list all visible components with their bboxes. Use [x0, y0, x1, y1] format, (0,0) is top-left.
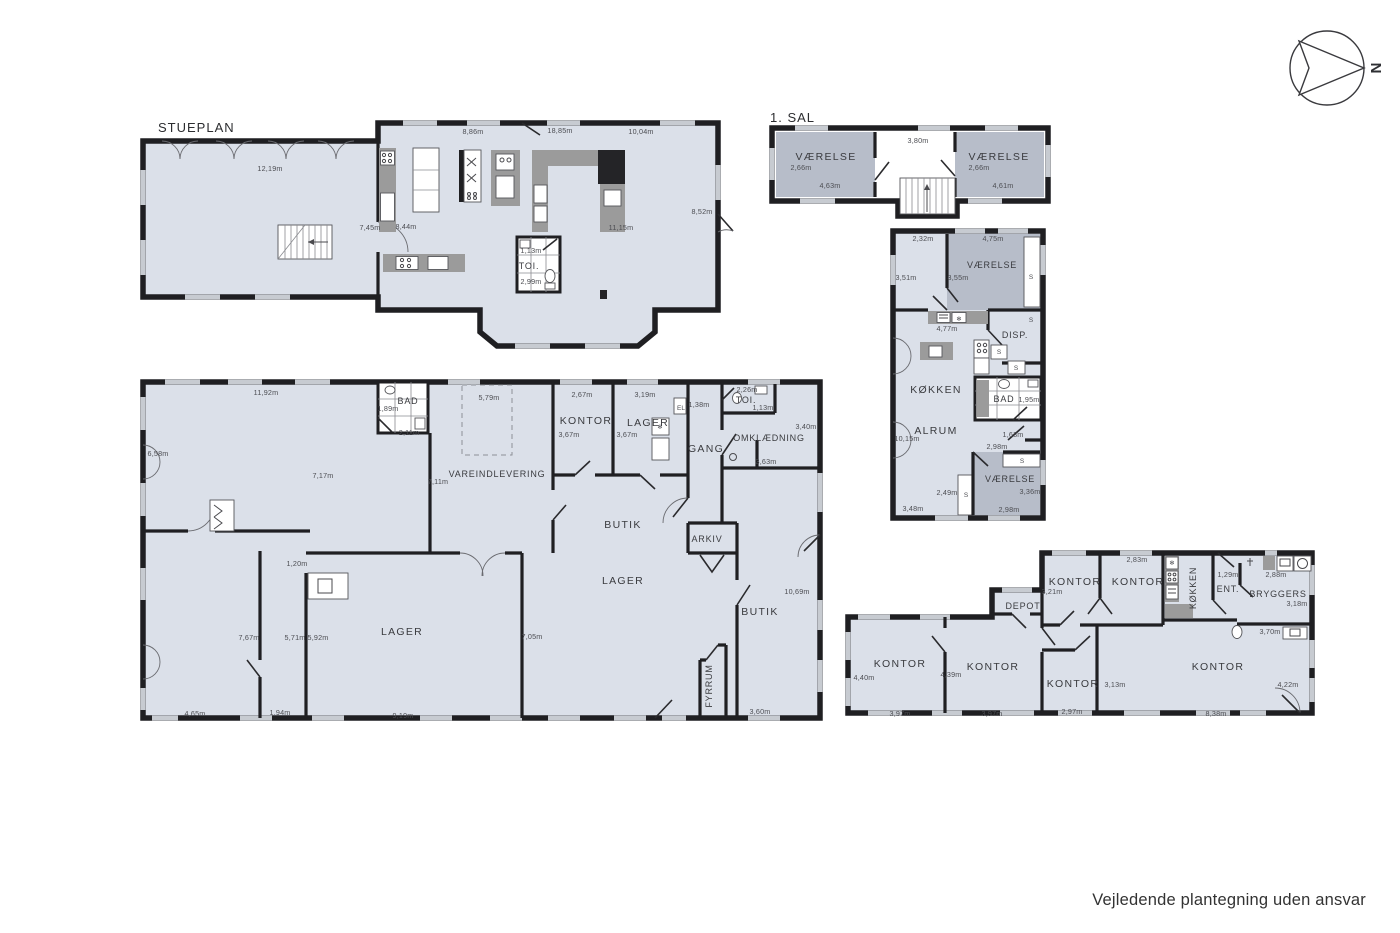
- dim-label: 2,66m: [791, 163, 812, 172]
- first-floor-plan: 1. SAL VÆRELSE 2,66m 4,63m 3,80m VÆRELSE…: [770, 110, 1051, 216]
- dim-label: 3,97m: [890, 709, 911, 718]
- room-label-kontor: KONTOR: [967, 661, 1020, 673]
- room-label-toi: TOI.: [519, 261, 540, 271]
- dim-label: 1,63m: [1003, 430, 1024, 439]
- compass-north-label: N: [1367, 63, 1384, 74]
- hall-plan: ❄ 11,92m 6,58m BAD 1,89m 2,11m 5,79m 7,1…: [141, 380, 823, 721]
- room-label-vaerelse: VÆRELSE: [985, 474, 1035, 484]
- room-label-koekken: KØKKEN: [1188, 567, 1198, 609]
- room-label-alrum: ALRUM: [914, 425, 957, 437]
- dim-label: 5,71m: [285, 633, 306, 642]
- room-label-ent: ENT.: [1217, 584, 1240, 594]
- room-label-disp: DISP.: [1002, 330, 1028, 340]
- dim-label: 8,86m: [463, 127, 484, 136]
- dim-label: 2,67m: [572, 390, 593, 399]
- dim-label: 4,77m: [937, 324, 958, 333]
- sal-title: 1. SAL: [770, 110, 815, 125]
- dim-label: 2,99m: [521, 277, 542, 286]
- room-label-kontor: KONTOR: [1047, 678, 1100, 690]
- room-label-koekken: KØKKEN: [910, 384, 962, 396]
- dim-label: 4,40m: [854, 673, 875, 682]
- dim-label: 2,98m: [987, 442, 1008, 451]
- dim-label: 7,11m: [428, 477, 448, 486]
- dim-label: 1,38m: [689, 400, 710, 409]
- dim-label: 2,11m: [399, 428, 419, 437]
- dim-label: 7,45m: [360, 223, 381, 232]
- room-label-bryggers: BRYGGERS: [1249, 589, 1306, 599]
- closet-label: S: [1014, 365, 1019, 372]
- room-label-fyrrum: FYRRUM: [704, 664, 714, 707]
- room-label-vareindlevering: VAREINDLEVERING: [449, 469, 546, 479]
- dim-label: 2,88m: [1266, 570, 1287, 579]
- dim-label: 3,48m: [903, 504, 924, 513]
- compass: N: [1290, 31, 1384, 105]
- dim-label: 4,63m: [820, 181, 841, 190]
- dim-label: 1,13m: [753, 403, 774, 412]
- room-label-butik: BUTIK: [741, 606, 778, 618]
- room-label-kontor: KONTOR: [874, 658, 927, 670]
- freezer-icon: ❄: [956, 315, 962, 323]
- dim-label: 5,79m: [479, 393, 500, 402]
- dim-label: 11,92m: [254, 388, 279, 397]
- room-label-kontor: KONTOR: [1049, 576, 1102, 588]
- dim-label: 3,13m: [1105, 680, 1126, 689]
- stueplan-stairs: [278, 225, 332, 259]
- closet-label: S: [964, 492, 969, 499]
- dim-label: 4,61m: [993, 181, 1014, 190]
- el-label: EL: [677, 405, 685, 412]
- room-label-kontor: KONTOR: [1112, 576, 1165, 588]
- dim-label: 8,38m: [1206, 709, 1227, 718]
- dim-label: 1,20m: [287, 559, 308, 568]
- dim-label: 3,18m: [1287, 599, 1308, 608]
- dim-label: 3,21m: [1042, 587, 1063, 596]
- room-label-lager: LAGER: [381, 626, 423, 638]
- dim-label: 7,67m: [239, 633, 260, 642]
- dim-label: 3,67m: [617, 430, 638, 439]
- dim-label: 1,94m: [270, 708, 291, 717]
- room-label-kontor: KONTOR: [560, 415, 613, 427]
- dim-label: 2,49m: [937, 488, 958, 497]
- room-label-bad: BAD: [994, 394, 1015, 404]
- dim-label: 7,17m: [313, 471, 334, 480]
- dim-label: 10,69m: [784, 587, 809, 596]
- room-label-gang: GANG: [688, 443, 724, 455]
- dim-label: 11,15m: [609, 223, 634, 232]
- stueplan-plan: STUEPLAN 12,19m 8,86m 18,85m 10,04m 7,45…: [141, 120, 734, 349]
- dim-label: 4,39m: [941, 670, 962, 679]
- hall-outline: [143, 382, 820, 718]
- dim-label: 1,95m: [1019, 395, 1040, 404]
- dim-label: 6,58m: [148, 449, 169, 458]
- disclaimer-text: Vejledende plantegning uden ansvar: [1092, 891, 1366, 909]
- dim-label: 3,67m: [559, 430, 580, 439]
- sal-stairs: [900, 178, 955, 214]
- closet-label: S: [997, 349, 1002, 356]
- dim-label: 3,63m: [756, 457, 777, 466]
- freezer-icon: ❄: [1169, 559, 1175, 567]
- floorplan-page: STUEPLAN 12,19m 8,86m 18,85m 10,04m 7,45…: [0, 0, 1400, 933]
- room-label-bad: BAD: [398, 396, 419, 406]
- dim-label: 8,44m: [396, 222, 417, 231]
- dim-label: 2,83m: [1127, 555, 1148, 564]
- closet-label: S: [1029, 274, 1034, 281]
- dim-label: 12,19m: [257, 164, 282, 173]
- stueplan-title: STUEPLAN: [158, 120, 235, 135]
- office-plan: ❄ DEPOT 3,21m KONTOR 2,83m KONTOR KØKKEN…: [846, 551, 1315, 719]
- room-label-vaerelse: VÆRELSE: [968, 151, 1029, 163]
- closet-label: S: [1029, 317, 1034, 324]
- dim-label: 3,60m: [750, 707, 771, 716]
- dim-label: 1,29m: [1218, 570, 1239, 579]
- dim-label: 2,98m: [999, 505, 1020, 514]
- dim-label: 18,85m: [547, 126, 572, 135]
- dim-label: 7,05m: [522, 632, 543, 641]
- dim-label: 5,92m: [308, 633, 329, 642]
- room-label-lager: LAGER: [602, 575, 644, 587]
- dim-label: 3,97m: [982, 709, 1003, 718]
- dim-label: 3,40m: [796, 422, 817, 431]
- room-label-kontor: KONTOR: [1192, 661, 1245, 673]
- room-label-vaerelse: VÆRELSE: [967, 260, 1017, 270]
- room-label-vaerelse: VÆRELSE: [795, 151, 856, 163]
- dim-label: 10,15m: [894, 434, 919, 443]
- dim-label: 3,80m: [908, 136, 929, 145]
- floorplan-canvas: STUEPLAN 12,19m 8,86m 18,85m 10,04m 7,45…: [0, 0, 1400, 933]
- room-label-butik: BUTIK: [604, 519, 641, 531]
- dim-label: 2,66m: [969, 163, 990, 172]
- dim-label: 1,13m: [521, 246, 542, 255]
- room-label-depot: DEPOT: [1005, 601, 1040, 611]
- room-label-lager: LAGER: [627, 417, 669, 429]
- dim-label: 2,32m: [913, 234, 934, 243]
- dim-label: 2,97m: [1062, 707, 1083, 716]
- dim-label: 9,19m: [393, 711, 414, 720]
- compass-needle-icon: [1299, 41, 1364, 95]
- dim-label: 3,36m: [1020, 487, 1041, 496]
- annex-plan: ❄ 2,32m 4,75m 3,51m VÆRELSE 3,55m: [891, 229, 1046, 521]
- room-label-omklaedning: OMKLÆDNING: [733, 433, 805, 443]
- room-label-arkiv: ARKIV: [691, 534, 722, 544]
- dim-label: 8,52m: [692, 207, 713, 216]
- dim-label: 4,75m: [983, 234, 1004, 243]
- dim-label: 2,26m: [737, 385, 758, 394]
- dim-label: 4,65m: [185, 709, 206, 718]
- dim-label: 3,51m: [896, 273, 917, 282]
- dim-label: 3,19m: [635, 390, 656, 399]
- closet-label: S: [1020, 458, 1025, 465]
- dim-label: 10,04m: [628, 127, 653, 136]
- dim-label: 3,70m: [1260, 627, 1281, 636]
- dim-label: 4,22m: [1278, 680, 1299, 689]
- dim-label: 3,55m: [948, 273, 969, 282]
- dim-label: 1,89m: [378, 404, 399, 413]
